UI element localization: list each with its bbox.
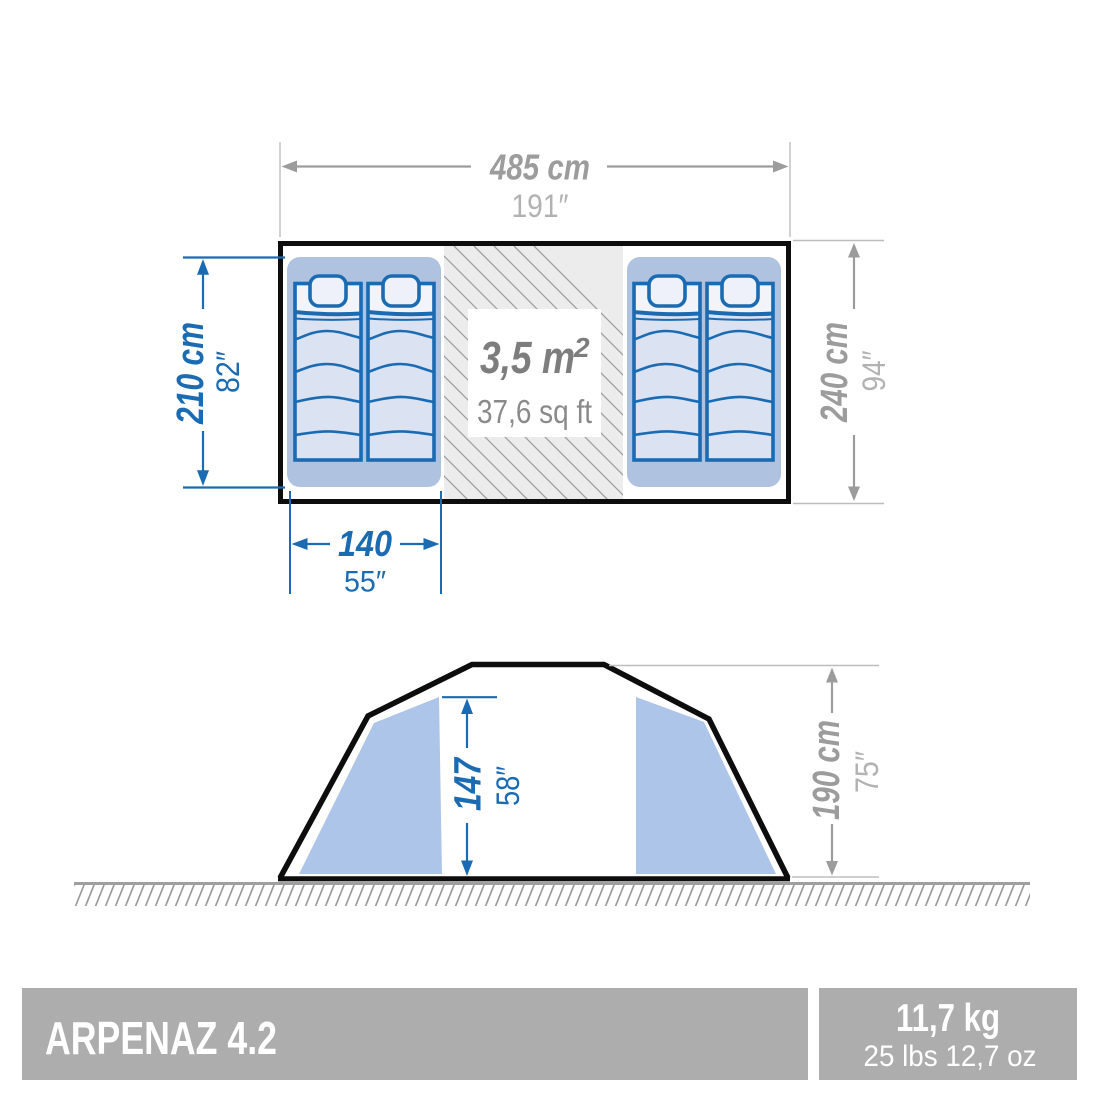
svg-text:485 cm: 485 cm xyxy=(489,147,590,188)
svg-text:147: 147 xyxy=(448,756,490,811)
svg-text:25 lbs 12,7 oz: 25 lbs 12,7 oz xyxy=(864,1040,1037,1073)
svg-text:210 cm: 210 cm xyxy=(170,322,212,425)
svg-text:140: 140 xyxy=(338,523,392,564)
svg-text:11,7 kg: 11,7 kg xyxy=(896,997,1000,1040)
svg-text:ARPENAZ 4.2: ARPENAZ 4.2 xyxy=(45,1012,277,1064)
svg-text:2: 2 xyxy=(573,332,590,363)
svg-text:75″: 75″ xyxy=(849,751,885,793)
svg-text:3,5 m: 3,5 m xyxy=(480,332,575,383)
svg-text:58″: 58″ xyxy=(490,766,526,806)
svg-text:37,6 sq ft: 37,6 sq ft xyxy=(477,393,592,430)
svg-text:55″: 55″ xyxy=(344,566,386,599)
svg-text:94″: 94″ xyxy=(856,351,892,392)
svg-text:240 cm: 240 cm xyxy=(814,322,856,423)
svg-text:82″: 82″ xyxy=(210,351,246,393)
svg-text:191″: 191″ xyxy=(512,188,569,224)
svg-text:190 cm: 190 cm xyxy=(806,720,848,820)
